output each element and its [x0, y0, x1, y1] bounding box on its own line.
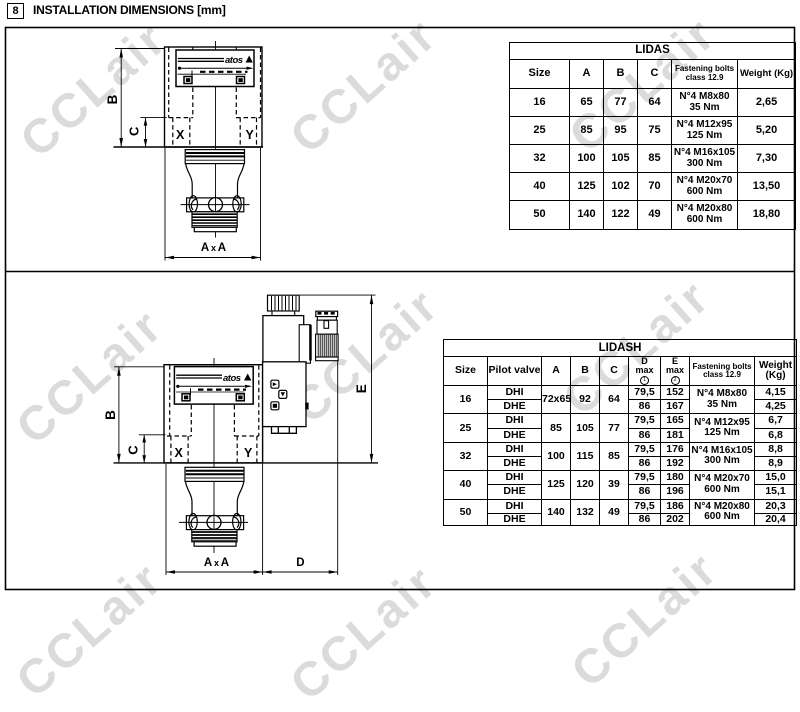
svg-text:D: D: [296, 557, 304, 569]
svg-text:B: B: [103, 410, 118, 420]
svg-text:C: C: [127, 126, 142, 136]
svg-text:Y: Y: [244, 446, 253, 460]
svg-text:X: X: [176, 128, 185, 142]
svg-text:X: X: [175, 446, 184, 460]
svg-text:A x A: A x A: [204, 557, 229, 569]
svg-text:E: E: [354, 384, 369, 393]
svg-text:Y: Y: [246, 128, 255, 142]
svg-text:A x A: A x A: [201, 242, 226, 254]
svg-text:B: B: [105, 94, 120, 104]
svg-text:atos: atos: [223, 373, 241, 384]
svg-text:atos: atos: [225, 55, 243, 66]
svg-text:C: C: [126, 445, 141, 455]
